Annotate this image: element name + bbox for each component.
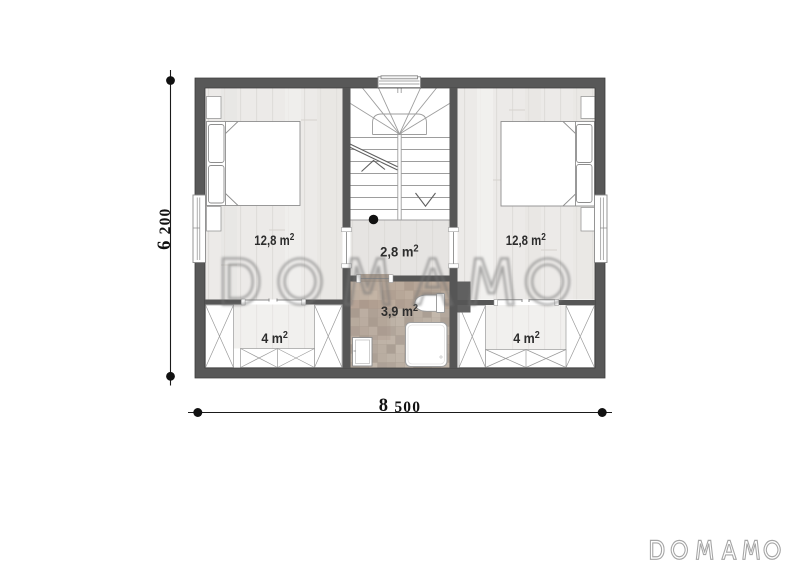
svg-text:12,8 m2: 12,8 m2 — [506, 232, 546, 248]
svg-text:12,8 m2: 12,8 m2 — [254, 232, 294, 248]
svg-text:6 200: 6 200 — [155, 208, 175, 250]
svg-text:8 500: 8 500 — [379, 396, 421, 416]
svg-text:2,8 m2: 2,8 m2 — [380, 244, 419, 260]
